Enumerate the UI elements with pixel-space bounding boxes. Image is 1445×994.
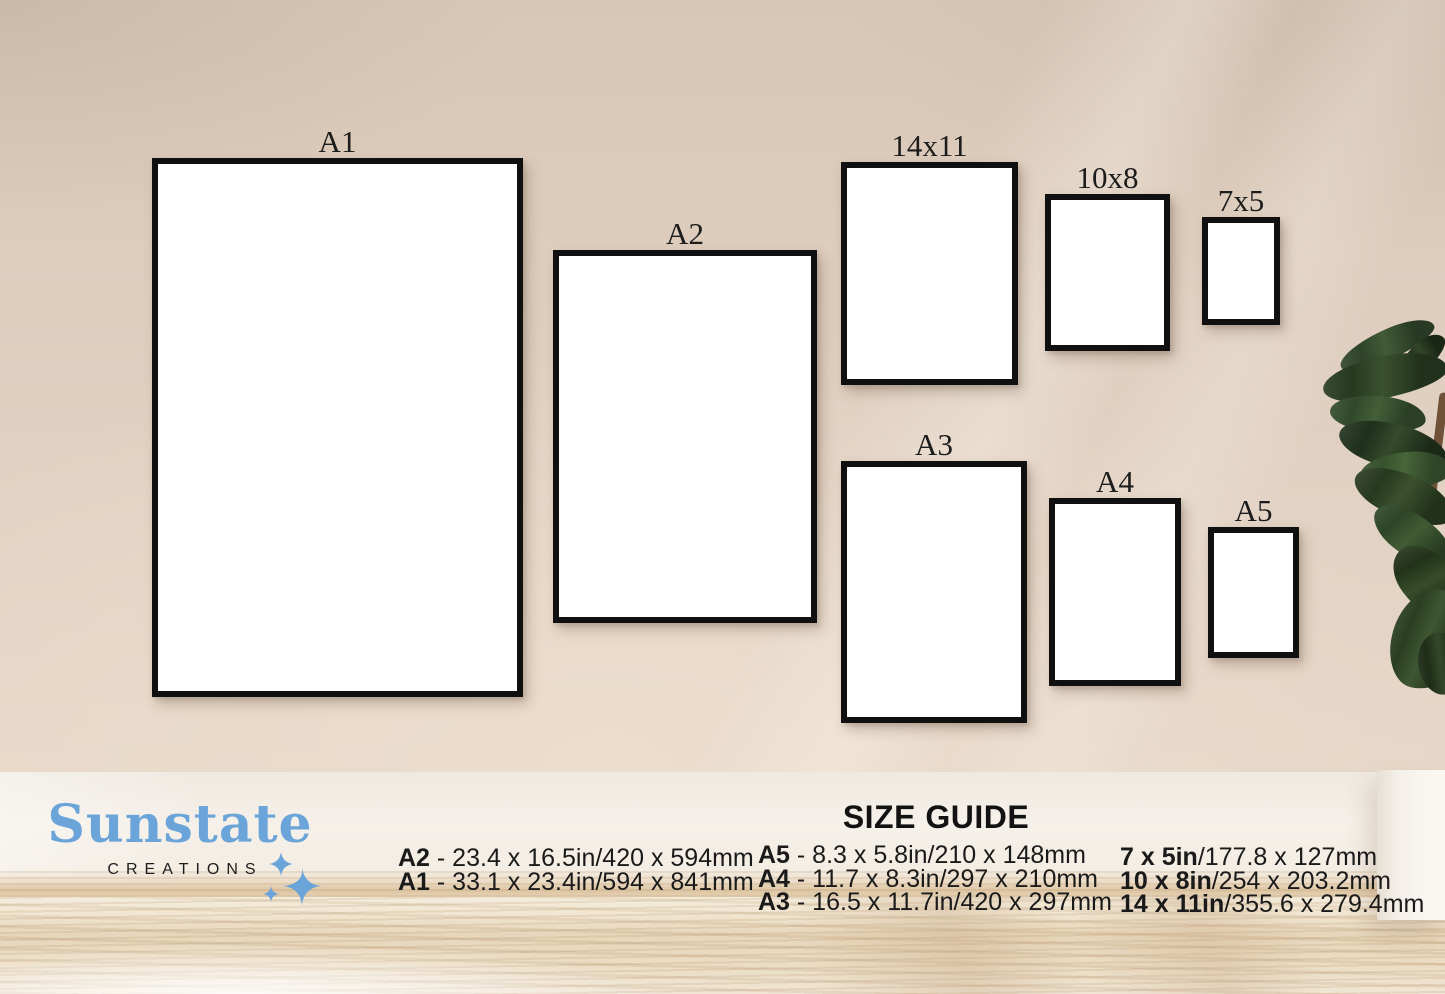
frame-a5: A5: [1208, 527, 1299, 658]
frame-7x5: 7x5: [1202, 217, 1280, 325]
frame-a4: A4: [1049, 498, 1181, 686]
frame-a1-label: A1: [319, 126, 357, 157]
brand-name: Sunstate: [28, 799, 332, 851]
frame-a4-label: A4: [1096, 466, 1134, 497]
size-guide-mockup: A1 A2 14x11 10x8 7x5 A3 A4 A5 Sunstate C…: [0, 0, 1445, 994]
frame-14x11: 14x11: [841, 162, 1018, 385]
size-guide-column-2: A5 - 8.3 x 5.8in/210 x 148mm A4 - 11.7 x…: [758, 844, 1112, 915]
frame-a2: A2: [553, 250, 817, 623]
frame-10x8-label: 10x8: [1077, 162, 1139, 193]
size-guide-title: SIZE GUIDE: [843, 799, 1029, 836]
frame-14x11-label: 14x11: [891, 130, 967, 161]
size-row: A3 - 16.5 x 11.7in/420 x 297mm: [758, 891, 1112, 915]
frame-7x5-label: 7x5: [1218, 185, 1265, 216]
frame-a5-label: A5: [1235, 495, 1273, 526]
frame-10x8: 10x8: [1045, 194, 1170, 351]
frame-a2-label: A2: [666, 218, 704, 249]
sparkle-icon: [262, 852, 326, 910]
frame-a3-label: A3: [915, 429, 953, 460]
frame-a1: A1: [152, 158, 523, 697]
frame-a3: A3: [841, 461, 1027, 723]
size-row: 14 x 11in/355.6 x 279.4mm: [1120, 893, 1424, 917]
size-guide-column-1: A2 - 23.4 x 16.5in/420 x 594mm A1 - 33.1…: [398, 847, 754, 894]
size-row: A1 - 33.1 x 23.4in/594 x 841mm: [398, 871, 754, 895]
size-guide-column-3: 7 x 5in/177.8 x 127mm 10 x 8in/254 x 203…: [1120, 846, 1424, 917]
